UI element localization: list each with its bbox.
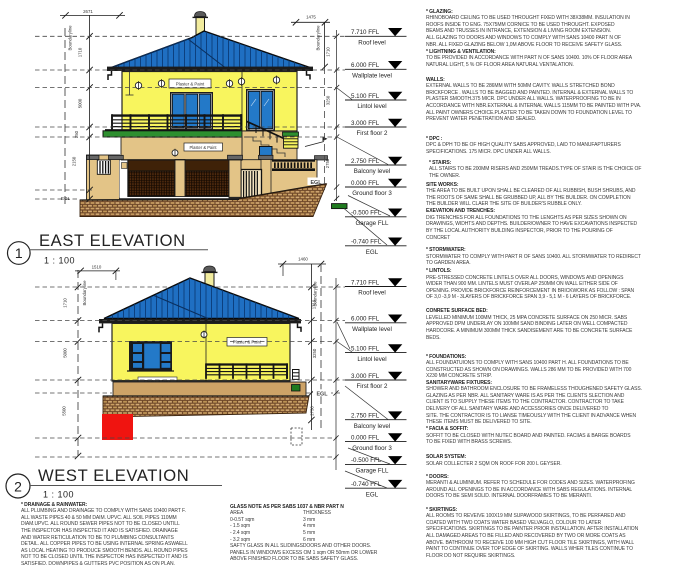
svg-text:2671: 2671 — [83, 9, 93, 14]
svg-text:Plaster & Paint: Plaster & Paint — [233, 340, 262, 345]
svg-text:-0.740 FFL: -0.740 FFL — [351, 481, 382, 488]
svg-text:-0.500 FFL: -0.500 FFL — [351, 210, 382, 217]
svg-text:WEST ELEVATION: WEST ELEVATION — [38, 466, 189, 485]
svg-text:3250: 3250 — [326, 95, 331, 105]
svg-text:1710: 1710 — [78, 47, 83, 57]
svg-text:Boundaryline: Boundaryline — [82, 280, 87, 306]
svg-text:1710: 1710 — [63, 298, 68, 308]
svg-text:1710: 1710 — [312, 299, 317, 309]
svg-text:Lintol level: Lintol level — [357, 103, 386, 110]
svg-text:Plaster & Paint: Plaster & Paint — [176, 81, 205, 86]
svg-text:6.000 FFL: 6.000 FFL — [351, 316, 380, 323]
svg-text:1460: 1460 — [298, 257, 308, 262]
svg-text:1710: 1710 — [326, 47, 331, 57]
svg-text:2: 2 — [14, 479, 22, 495]
svg-text:Roof level: Roof level — [358, 290, 386, 297]
svg-text:Lintol level: Lintol level — [357, 356, 386, 363]
svg-text:3.000 FFL: 3.000 FFL — [351, 120, 380, 127]
svg-text:Wallplate level: Wallplate level — [352, 326, 392, 333]
svg-text:Plaster & Paint: Plaster & Paint — [189, 145, 217, 150]
svg-text:First floor 2: First floor 2 — [357, 383, 389, 390]
svg-text:Ground floor 3: Ground floor 3 — [352, 445, 392, 452]
svg-text:1510: 1510 — [92, 264, 102, 269]
svg-text:3.000 FFL: 3.000 FFL — [351, 373, 380, 380]
svg-text:1475: 1475 — [306, 15, 316, 20]
svg-text:7.710 FFL: 7.710 FFL — [351, 29, 380, 36]
svg-text:Ground floor 3: Ground floor 3 — [352, 190, 392, 197]
svg-text:EGL: EGL — [366, 249, 379, 256]
svg-text:5.100 FFL: 5.100 FFL — [351, 93, 380, 100]
svg-text:EGL: EGL — [366, 491, 379, 498]
svg-text:Boundaryline: Boundaryline — [316, 25, 321, 51]
svg-text:5000: 5000 — [63, 348, 68, 358]
svg-text:5500: 5500 — [62, 406, 67, 416]
svg-text:EGL: EGL — [61, 196, 71, 201]
svg-text:-0.740 FFL: -0.740 FFL — [351, 239, 382, 246]
svg-text:2150: 2150 — [72, 156, 77, 166]
svg-text:Boundaryline: Boundaryline — [68, 25, 73, 51]
svg-text:1 : 100: 1 : 100 — [44, 256, 75, 266]
svg-text:EAST ELEVATION: EAST ELEVATION — [39, 231, 186, 250]
svg-text:0.000 FFL: 0.000 FFL — [351, 434, 380, 441]
svg-text:Wallplate level: Wallplate level — [352, 73, 392, 80]
svg-text:Roof level: Roof level — [358, 40, 386, 47]
svg-text:Garage FLL: Garage FLL — [355, 468, 389, 475]
svg-text:0.000 FFL: 0.000 FFL — [351, 180, 380, 187]
svg-text:-0.500 FFL: -0.500 FFL — [351, 457, 382, 464]
svg-text:Balcony level: Balcony level — [354, 168, 390, 175]
svg-text:7.710 FFL: 7.710 FFL — [351, 279, 380, 286]
svg-text:Balcony level: Balcony level — [354, 423, 390, 430]
svg-text:First floor 2: First floor 2 — [357, 130, 389, 137]
svg-text:2750: 2750 — [310, 406, 315, 416]
svg-text:1 : 100: 1 : 100 — [43, 490, 74, 500]
svg-text:2.750 FFL: 2.750 FFL — [351, 158, 380, 165]
svg-text:EGL: EGL — [316, 391, 328, 397]
svg-text:1: 1 — [15, 245, 23, 261]
svg-text:2750: 2750 — [325, 158, 330, 168]
svg-text:6.000 FFL: 6.000 FFL — [351, 62, 380, 69]
svg-text:5.100 FFL: 5.100 FFL — [351, 345, 380, 352]
svg-text:2.750 FFL: 2.750 FFL — [351, 413, 380, 420]
svg-text:Garage FLL: Garage FLL — [355, 220, 389, 227]
svg-text:3250: 3250 — [312, 348, 317, 358]
svg-text:5000: 5000 — [78, 98, 83, 108]
